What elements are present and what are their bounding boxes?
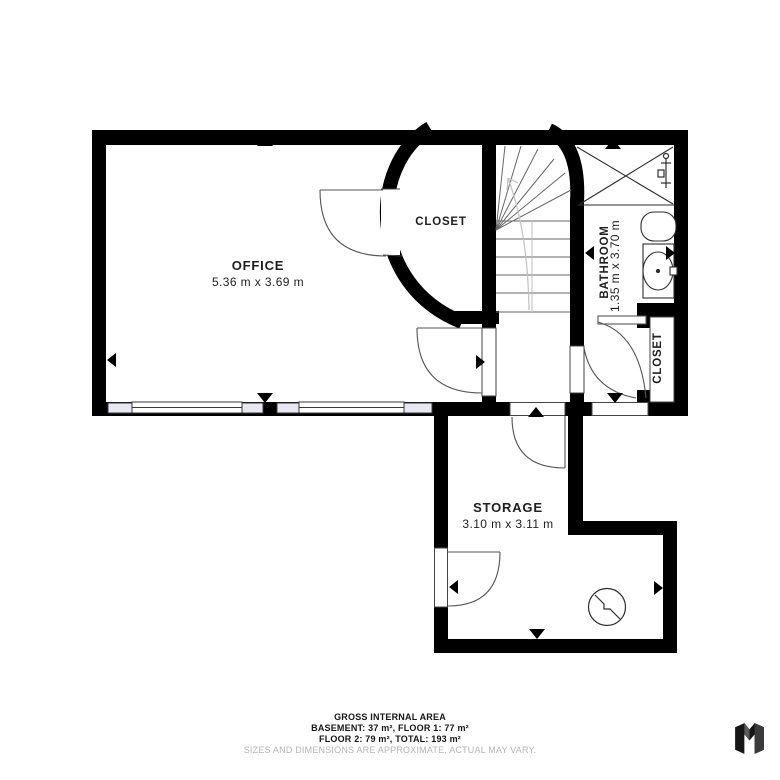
floor-plan-page: OFFICE 5.36 m x 3.69 m CLOSET BATHROOM 1… (0, 0, 780, 780)
storage-left-door (448, 552, 500, 606)
closet-top-label: CLOSET (415, 216, 466, 228)
marker-down (607, 393, 623, 403)
window-sill (108, 403, 132, 413)
bathroom-dims: 1.35 m x 3.70 m (608, 220, 622, 312)
floor-plan-drawing: OFFICE 5.36 m x 3.69 m CLOSET BATHROOM 1… (0, 0, 780, 780)
storage-label: STORAGE (473, 500, 543, 515)
areas-line-1: BASEMENT: 37 m², FLOOR 1: 77 m² (0, 723, 780, 734)
closet-curved-door-opening (381, 189, 402, 256)
office-label: OFFICE (232, 258, 284, 273)
storage-entry-doorway (435, 548, 448, 607)
water-heater-icon (589, 589, 626, 626)
window-sill (277, 403, 299, 413)
marker-down (529, 629, 545, 639)
toilet (641, 212, 676, 241)
storage-top-door (512, 416, 565, 468)
areas-line-2: FLOOR 2: 79 m², TOTAL: 193 m² (0, 734, 780, 745)
matterport-logo-icon (731, 720, 768, 757)
marker-down (257, 393, 273, 403)
storage-dims: 3.10 m x 3.11 m (462, 517, 553, 531)
bathroom-door (584, 316, 646, 398)
closet-door (320, 190, 386, 256)
stairs (496, 146, 571, 312)
marker-left (585, 246, 594, 260)
marker-left (449, 580, 458, 594)
office-door (417, 328, 482, 393)
closet-right-label: CLOSET (652, 332, 664, 383)
marker-left (107, 353, 116, 367)
window-sill (404, 403, 432, 413)
marker-right (654, 581, 663, 595)
window-sill (242, 403, 263, 413)
landing-bathroom-opening (570, 346, 584, 393)
bathroom-fixtures (577, 147, 677, 298)
gross-internal-area-title: GROSS INTERNAL AREA (0, 712, 780, 723)
footer-area-summary: GROSS INTERNAL AREA BASEMENT: 37 m², FLO… (0, 712, 780, 756)
disclaimer-text: SIZES AND DIMENSIONS ARE APPROXIMATE, AC… (0, 745, 780, 756)
office-dims: 5.36 m x 3.69 m (212, 275, 304, 289)
bathroom-doorway (592, 403, 648, 416)
stair-direction-arrow (507, 178, 529, 310)
shower-head-icon (658, 154, 671, 189)
